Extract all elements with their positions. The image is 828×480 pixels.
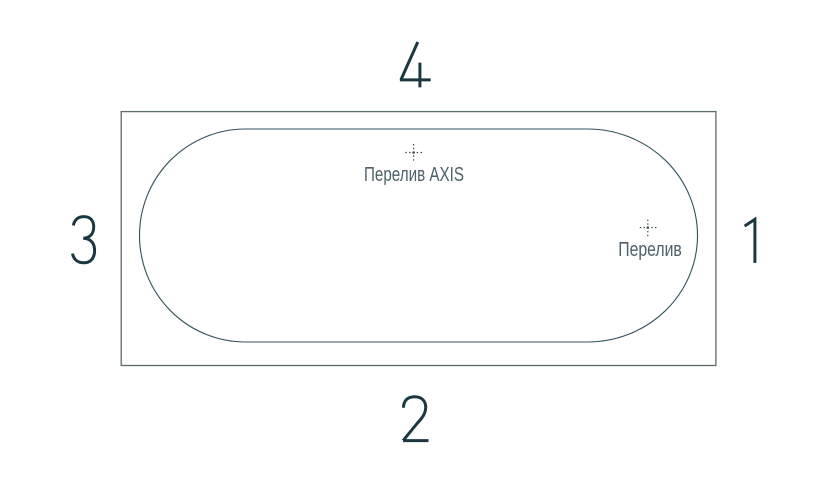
- svg-text:Перелив AXIS: Перелив AXIS: [364, 164, 464, 186]
- svg-text:Перелив: Перелив: [618, 239, 682, 261]
